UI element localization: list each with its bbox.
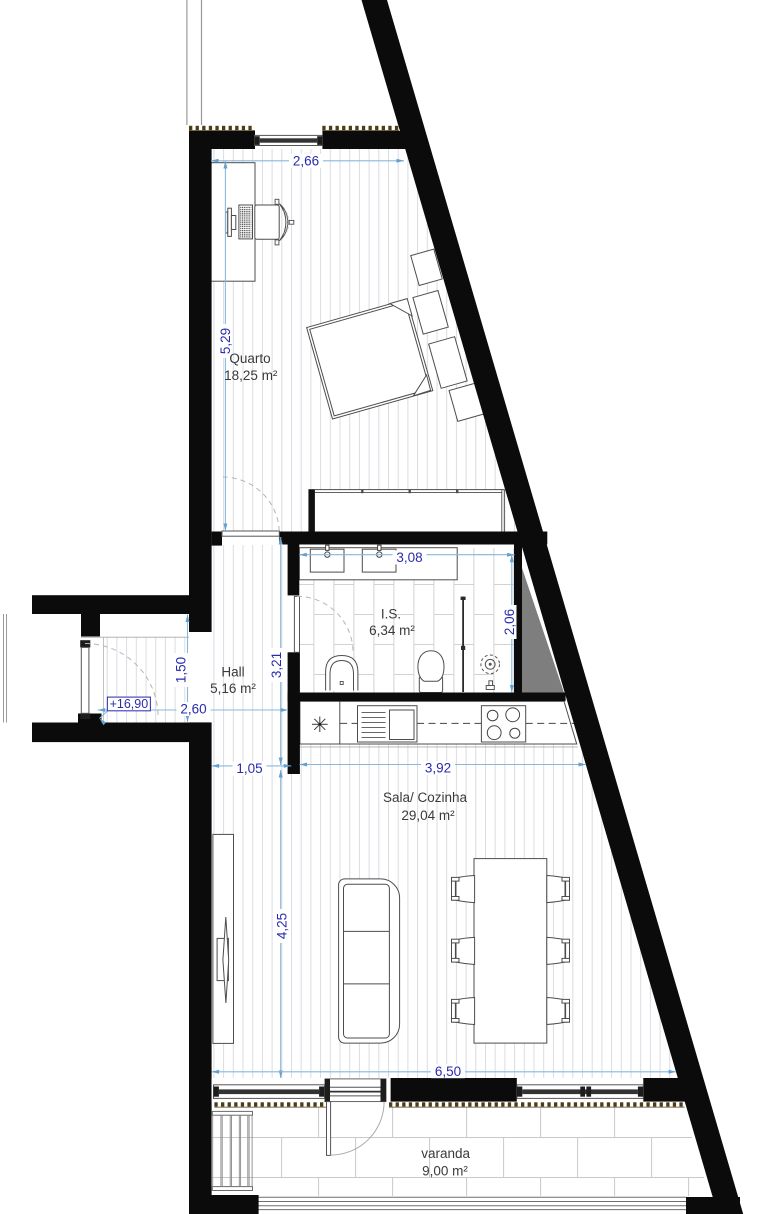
svg-text:Quarto: Quarto	[229, 351, 270, 366]
svg-text:1,50: 1,50	[174, 657, 189, 683]
svg-text:5,16 m²: 5,16 m²	[210, 681, 256, 696]
svg-text:3,08: 3,08	[396, 550, 422, 565]
svg-text:6,34 m²: 6,34 m²	[369, 623, 415, 638]
svg-text:2,60: 2,60	[180, 702, 206, 717]
svg-text:4,25: 4,25	[274, 913, 289, 939]
svg-text:29,04 m²: 29,04 m²	[401, 808, 455, 823]
svg-text:I.S.: I.S.	[381, 607, 401, 622]
svg-text:3,21: 3,21	[269, 652, 284, 678]
svg-text:Sala/ Cozinha: Sala/ Cozinha	[383, 790, 468, 805]
svg-text:1,05: 1,05	[236, 761, 262, 776]
svg-text:2,06: 2,06	[502, 609, 517, 635]
svg-text:Hall: Hall	[221, 665, 244, 680]
svg-text:varanda: varanda	[421, 1146, 470, 1161]
svg-text:18,25 m²: 18,25 m²	[224, 368, 278, 383]
svg-text:3,92: 3,92	[425, 761, 451, 776]
svg-text:+16,90: +16,90	[110, 697, 149, 711]
svg-text:2,66: 2,66	[293, 154, 319, 169]
svg-text:9,00 m²: 9,00 m²	[422, 1164, 468, 1179]
svg-text:6,50: 6,50	[435, 1064, 461, 1079]
